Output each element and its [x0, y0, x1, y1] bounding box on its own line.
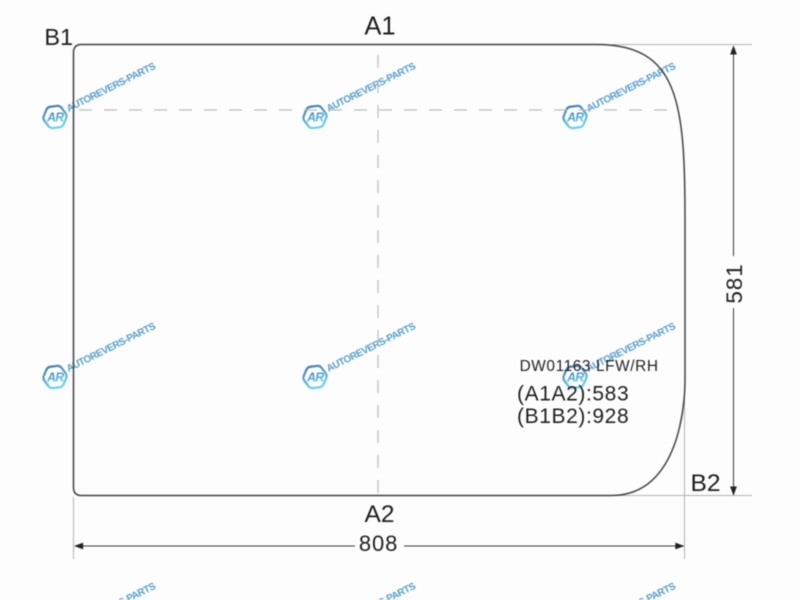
svg-text:A2: A2	[365, 501, 395, 528]
svg-text:B1: B1	[44, 24, 73, 50]
svg-text:581: 581	[722, 263, 747, 303]
svg-text:DW01163 LFW/RH: DW01163 LFW/RH	[520, 358, 659, 375]
svg-text:808: 808	[359, 531, 398, 556]
svg-text:(B1B2):928: (B1B2):928	[517, 405, 629, 428]
svg-text:(A1A2):583: (A1A2):583	[517, 383, 629, 406]
svg-text:A1: A1	[364, 13, 395, 41]
svg-text:B2: B2	[691, 470, 721, 497]
